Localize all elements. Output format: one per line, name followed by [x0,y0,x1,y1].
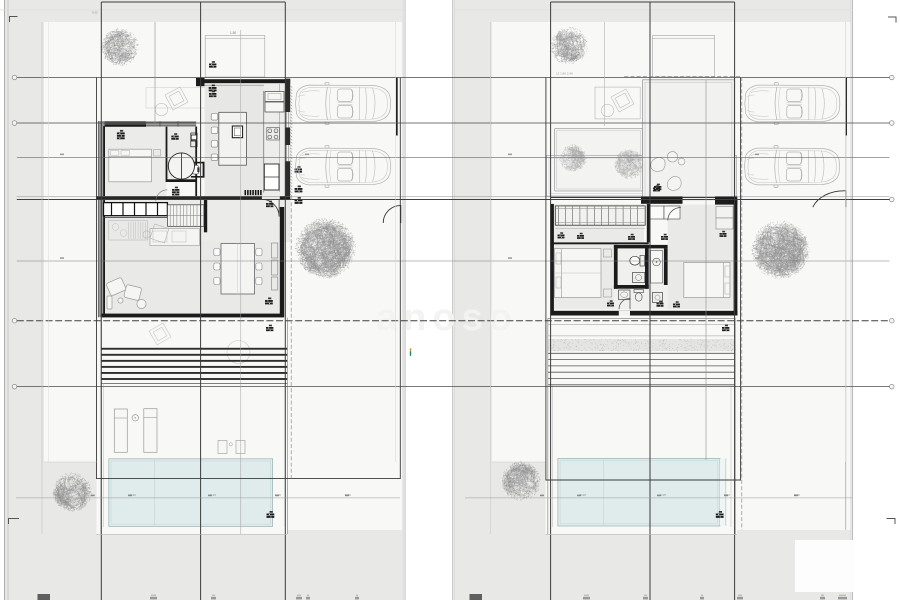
svg-text:5.00: 5.00 [345,493,351,497]
svg-text:3.20: 3.20 [130,493,136,497]
svg-text:4.15: 4.15 [210,493,216,497]
svg-text:1.50: 1.50 [230,31,236,35]
svg-text:anoso: anoso [376,297,518,339]
svg-text:8.35: 8.35 [92,11,98,15]
svg-text:1.10: 1.10 [724,493,730,497]
svg-text:5.00: 5.00 [794,493,800,497]
svg-text:3.20: 3.20 [580,493,586,497]
svg-text:1.10: 1.10 [275,493,281,497]
svg-text:4.15: 4.15 [660,493,666,497]
svg-text:12 1.80 2.40: 12 1.80 2.40 [556,72,573,76]
